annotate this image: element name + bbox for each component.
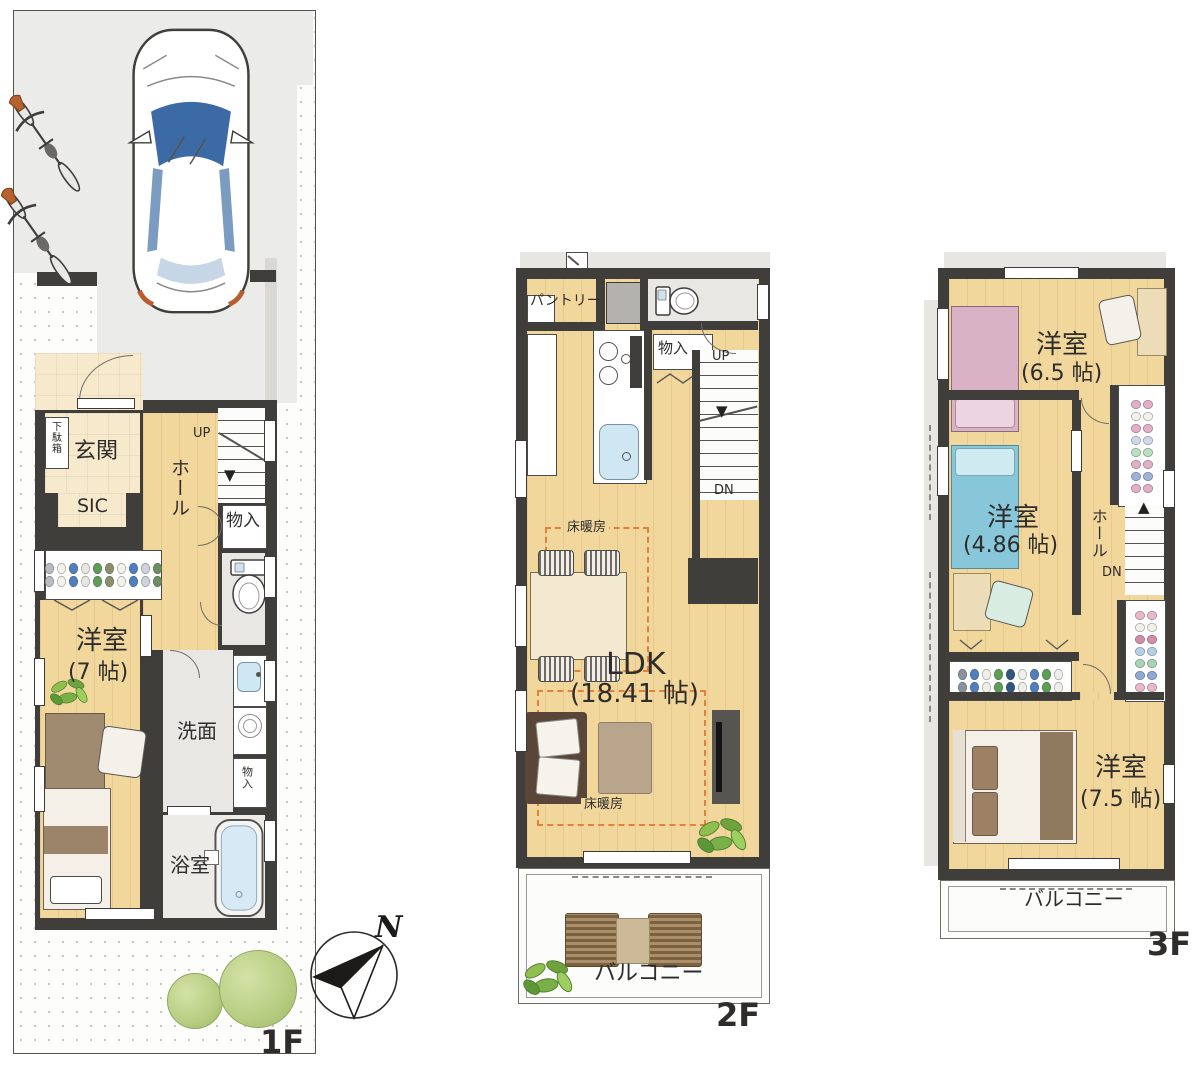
car-icon (126, 26, 256, 318)
bathroom-label: 浴室 (170, 855, 210, 876)
entrance-label: 玄関 (74, 440, 118, 463)
dn-label-2f: DN (714, 484, 734, 498)
shadow-3f-left (924, 300, 938, 866)
bedroom-1f-label: 洋室 (76, 628, 128, 655)
window (34, 658, 45, 706)
hanger-icon (1131, 412, 1153, 421)
closet-door-mark (1044, 638, 1070, 651)
window (264, 420, 276, 462)
bedroom1-3f-label: 洋室 (1036, 332, 1088, 359)
pantry-label: パントリー (530, 294, 601, 309)
tv-screen (716, 722, 722, 792)
bed-pillow-1f (50, 876, 102, 904)
ldk-size-label: (18.41 帖) (570, 681, 699, 708)
stairs-2f (700, 350, 758, 500)
desk-3f (1137, 288, 1167, 356)
hanger-icon (1054, 669, 1063, 693)
bed-headboard (953, 730, 966, 842)
hanger-icon (970, 669, 979, 693)
bedroom-1f-size: (7 帖) (68, 661, 128, 684)
hanger-icon (982, 669, 991, 693)
wall-segment (949, 390, 1079, 400)
side-counter (527, 334, 557, 476)
kitchen-sink (599, 424, 639, 480)
shadow-3f-top (944, 252, 1166, 268)
bathtub-icon (213, 818, 265, 918)
hanger-icon (1131, 484, 1153, 493)
window (1163, 470, 1175, 508)
closet-3f-top (1118, 385, 1166, 507)
dn-label-3f: DN (1102, 566, 1122, 580)
window (264, 556, 276, 598)
stairs-arrow-icon: ▲ (1138, 500, 1150, 515)
boundary-dash (929, 425, 931, 520)
hanger-icon (1135, 671, 1157, 680)
wall-segment (1117, 600, 1125, 700)
stairs-arrow-icon: ▼ (716, 404, 728, 419)
window (937, 446, 949, 496)
plant-icon (694, 816, 750, 858)
hanger-icon (1006, 669, 1015, 693)
bed-blue-pillow (955, 448, 1015, 476)
closet-1f (45, 550, 162, 600)
balcony-chair (648, 913, 702, 967)
hanger-icon (93, 563, 102, 587)
hanger-icon (1042, 669, 1051, 693)
closet-door-mark (958, 638, 984, 651)
wall-segment (949, 652, 1079, 661)
parking-sliver (297, 11, 313, 85)
hall-label-1f: ホール (168, 458, 188, 518)
up-label-2f: UP (712, 350, 729, 364)
window (34, 766, 45, 812)
bedroom3-3f-label: 洋室 (1095, 755, 1147, 782)
balcony-door (1008, 858, 1120, 870)
hanger-icon (1135, 611, 1157, 620)
hanger-icon (105, 563, 114, 587)
floor-heating-label: 床暖房 (564, 521, 609, 535)
washbasin (237, 662, 261, 692)
bedroom1-3f-size: (6.5 帖) (1021, 362, 1102, 385)
storage-2f-label: 物入 (658, 341, 688, 357)
hanger-icon (1131, 472, 1153, 481)
entrance-door (77, 398, 135, 409)
garden-bush (219, 950, 297, 1028)
hanger-icon (141, 563, 150, 587)
hanger-icon (81, 563, 90, 587)
wall-segment (644, 330, 652, 480)
bed-blanket-1f (44, 826, 108, 854)
hanger-icon (1135, 623, 1157, 632)
window (1163, 764, 1175, 804)
ldk-label: LDK (606, 649, 666, 681)
hanger-icon (1135, 635, 1157, 644)
sic-label: SIC (77, 497, 108, 517)
floor-plan-canvas: ▼ (0, 0, 1200, 1067)
stove-burner-icon (599, 342, 618, 361)
hall-label-3f: ホール (1089, 508, 1106, 559)
hanger-icon (1135, 659, 1157, 668)
window (757, 284, 769, 320)
wall-segment (640, 279, 648, 330)
closet-door-mark (100, 598, 140, 612)
storage-washroom-label: 物入 (241, 766, 253, 790)
balcony-2f-label: バルコニー (594, 962, 704, 985)
desk-3f (953, 573, 991, 631)
sofa-cushion (535, 756, 580, 798)
toilet-icon (654, 284, 700, 318)
stove-grill (630, 336, 642, 388)
stairs-3f (1125, 505, 1164, 595)
hanger-icon (1135, 683, 1157, 692)
hanger-icon (153, 563, 162, 587)
wall-segment (688, 558, 758, 604)
window (937, 308, 949, 380)
wall-segment (1110, 385, 1118, 505)
window (1004, 267, 1079, 279)
chair-1f (97, 725, 147, 779)
faucet-icon (256, 672, 261, 677)
hanger-icon (1131, 448, 1153, 457)
hanger-icon (129, 563, 138, 587)
balcony-boundary-line (572, 876, 712, 878)
window (34, 550, 45, 592)
floor-heating-label: 床暖房 (581, 798, 626, 812)
floor-label-3f: 3F (1147, 928, 1191, 962)
window (264, 820, 276, 862)
dining-chair (538, 550, 574, 576)
sofa-cushion (535, 718, 581, 758)
floor-label-2f: 2F (716, 999, 760, 1033)
garden-bush (167, 973, 223, 1029)
storage-hall-label: 物入 (226, 513, 260, 531)
compass-north-label: N (374, 910, 404, 945)
hanger-icon (69, 563, 78, 587)
refrigerator (606, 282, 644, 324)
window (85, 908, 155, 920)
bedroom3-3f-size: (7.5 帖) (1080, 788, 1161, 811)
washer-drum-inner (243, 719, 257, 733)
window (515, 440, 527, 498)
bedroom2-3f-size: (4.86 帖) (963, 534, 1058, 557)
bedroom-door (1071, 430, 1082, 472)
shoe-cabinet-label: 下駄箱 (49, 421, 60, 454)
hanger-icon (1018, 669, 1027, 693)
bed-blanket (1040, 732, 1073, 840)
wall-segment (949, 692, 1164, 700)
hanger-icon (1135, 647, 1157, 656)
up-label-1f: UP (193, 427, 210, 441)
faucet-icon (622, 452, 631, 461)
hanger-icon (57, 563, 66, 587)
bedroom2-3f-label: 洋室 (987, 505, 1039, 532)
compass-icon: N (305, 905, 420, 1030)
balcony-door (583, 851, 691, 864)
window (515, 585, 527, 647)
bed-pillow (972, 792, 998, 836)
bed-pink-pillow (955, 398, 1015, 428)
hanger-icon (1131, 436, 1153, 445)
bed-pillow (972, 746, 998, 790)
bedroom-door (140, 615, 152, 657)
hanger-icon (1131, 424, 1153, 433)
floor-label-1f: 1F (260, 1026, 304, 1060)
desk-1f (45, 713, 105, 789)
plant-icon (520, 958, 576, 1000)
hanger-icon (1131, 460, 1153, 469)
hanger-icon (958, 669, 967, 693)
shadow-2f (520, 252, 770, 268)
window (264, 660, 276, 702)
hanger-icon (45, 563, 54, 587)
closet-door-mark (52, 598, 92, 612)
wall-segment (692, 350, 700, 558)
stairs-arrow-icon: ▼ (224, 468, 236, 483)
balcony-3f-label: バルコニー (1024, 889, 1124, 910)
window (515, 690, 527, 752)
hanger-icon (1131, 400, 1153, 409)
coffee-table (598, 722, 652, 794)
boundary-dash (929, 572, 931, 722)
stove-burner-icon (599, 366, 618, 385)
balcony-table (616, 918, 650, 964)
dining-chair (584, 550, 620, 576)
dining-chair (538, 656, 574, 682)
hanger-icon (1030, 669, 1039, 693)
closet-3f-right (1125, 600, 1166, 702)
hanger-icon (117, 563, 126, 587)
hanger-icon (994, 669, 1003, 693)
washroom-label: 洗面 (177, 721, 217, 742)
